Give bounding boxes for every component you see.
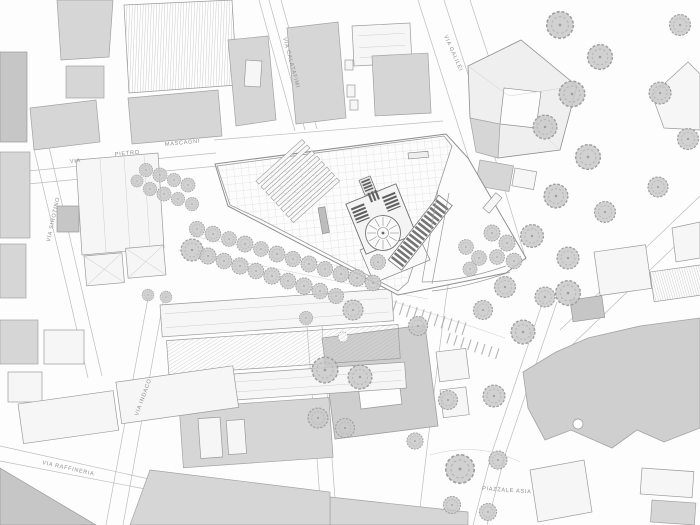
tree xyxy=(499,235,515,251)
building xyxy=(128,90,222,144)
tree xyxy=(185,197,198,210)
building xyxy=(0,244,26,298)
tree xyxy=(254,242,269,257)
striped-roof-building xyxy=(124,0,237,93)
tree xyxy=(205,226,221,242)
blocks-north-center xyxy=(287,22,431,124)
tree xyxy=(181,178,195,192)
site-plan-page: VIA PIETRO MASCAGNI VIA CALATAFIMI VIA G… xyxy=(0,0,700,525)
tree xyxy=(483,385,505,407)
building-annex xyxy=(436,348,469,381)
tree xyxy=(336,419,355,438)
tree xyxy=(588,45,613,70)
tree xyxy=(521,225,544,248)
site-plan-canvas: VIA PIETRO MASCAGNI VIA CALATAFIMI VIA G… xyxy=(0,0,700,525)
tree xyxy=(317,261,332,276)
tree xyxy=(343,300,363,320)
tree xyxy=(439,391,458,410)
large-building-mass xyxy=(523,318,700,448)
tree xyxy=(506,253,522,269)
tree xyxy=(285,251,300,266)
south-gray-mass xyxy=(130,470,330,525)
striped-roof-building xyxy=(650,265,700,302)
tree xyxy=(547,12,574,39)
tree xyxy=(484,225,500,241)
building-gray-north xyxy=(372,53,431,116)
tree xyxy=(409,317,428,336)
building xyxy=(30,100,100,150)
tree xyxy=(222,232,237,247)
building xyxy=(8,372,42,402)
tree xyxy=(648,177,668,197)
tree xyxy=(407,433,423,449)
building xyxy=(66,66,104,98)
tree xyxy=(495,277,516,298)
tree xyxy=(365,275,381,291)
tree xyxy=(489,451,507,469)
building xyxy=(44,330,84,364)
rooftop-circle xyxy=(573,419,583,429)
tree xyxy=(153,168,167,182)
tree xyxy=(446,455,475,484)
tree xyxy=(370,254,385,269)
tree xyxy=(678,129,699,150)
street-label-galilei: VIA GALILEI xyxy=(442,34,463,72)
tree xyxy=(232,258,248,274)
street-label-raffineria: VIA RAFFINERIA xyxy=(42,460,95,477)
tree xyxy=(157,187,171,201)
tree xyxy=(160,291,172,303)
tree xyxy=(142,289,154,301)
building xyxy=(672,222,700,262)
building xyxy=(640,468,694,498)
tree xyxy=(463,262,477,276)
street-label-via: VIA xyxy=(70,158,82,165)
tree xyxy=(544,184,568,208)
tree xyxy=(248,263,264,279)
tree xyxy=(556,281,581,306)
tree xyxy=(200,248,216,264)
tree xyxy=(333,266,349,282)
tree xyxy=(533,115,557,139)
blocks-north-west xyxy=(0,0,276,150)
tree xyxy=(576,145,601,170)
small-white-annex xyxy=(244,60,262,87)
tree xyxy=(312,283,328,299)
street-label-piazzale-asia: PIAZZALE ASIA xyxy=(482,486,532,495)
tree xyxy=(299,311,312,324)
tree xyxy=(649,82,671,104)
tree xyxy=(301,256,317,272)
tree xyxy=(139,163,152,176)
tree xyxy=(535,287,555,307)
shed-door xyxy=(198,417,223,458)
tree xyxy=(595,202,616,223)
tree xyxy=(216,253,232,269)
tree xyxy=(328,288,343,303)
tree xyxy=(264,268,280,284)
blocks-east xyxy=(570,222,700,322)
tree xyxy=(348,365,372,389)
tree xyxy=(511,320,535,344)
tree xyxy=(459,240,474,255)
tree xyxy=(557,247,579,269)
tree xyxy=(237,236,253,252)
tree xyxy=(181,239,203,261)
tree xyxy=(269,246,285,262)
building xyxy=(594,245,652,296)
building xyxy=(0,320,38,364)
tree xyxy=(143,182,156,195)
small-structures xyxy=(345,60,358,110)
tree xyxy=(167,173,180,186)
building-dark xyxy=(57,206,79,232)
building xyxy=(0,152,30,238)
tree xyxy=(312,357,338,383)
building xyxy=(512,168,537,190)
building xyxy=(57,0,113,60)
tree xyxy=(490,250,505,265)
tree xyxy=(479,503,496,520)
building xyxy=(530,460,592,522)
tree xyxy=(474,301,493,320)
tree xyxy=(308,408,328,428)
tree xyxy=(559,81,585,107)
building xyxy=(0,52,27,142)
tree xyxy=(189,221,204,236)
tree xyxy=(349,270,366,287)
building xyxy=(650,500,695,525)
tree xyxy=(280,273,296,289)
circular-dome xyxy=(366,216,401,251)
tree xyxy=(131,175,143,187)
tree xyxy=(171,192,184,205)
tree xyxy=(296,278,312,294)
tree xyxy=(670,15,691,36)
shed-door xyxy=(226,419,246,454)
tree xyxy=(443,496,460,513)
